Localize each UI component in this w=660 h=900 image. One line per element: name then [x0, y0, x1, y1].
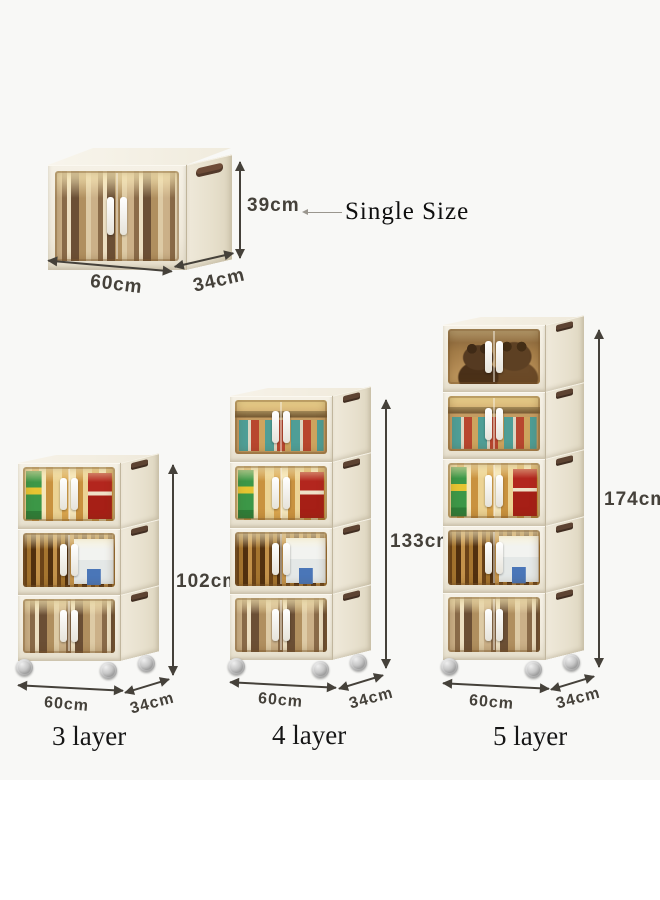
- width-dimension-arrow: [230, 681, 336, 689]
- latch-clip: [556, 321, 573, 332]
- unit-side-panel: [332, 452, 371, 528]
- unit-door-bottles: [448, 530, 540, 585]
- height-dimension-arrow: [239, 162, 241, 258]
- width-dimension-arrow: [18, 684, 123, 691]
- width-dimension-label: 60cm: [468, 692, 514, 714]
- product-dimension-diagram: 39cm 60cm 34cm Single Size 102cm 60cm 34…: [0, 0, 660, 900]
- box-front-panel: [48, 165, 186, 270]
- single-size-title: Single Size: [345, 198, 469, 226]
- door-handle: [484, 341, 504, 373]
- latch-clip: [343, 590, 360, 601]
- door-handle: [484, 542, 504, 574]
- unit-front-panel: [18, 529, 120, 595]
- door-handle: [484, 609, 504, 641]
- latch-clip: [343, 458, 360, 469]
- height-dimension-arrow: [598, 330, 600, 667]
- latch-clip: [556, 589, 573, 600]
- depth-dimension-label: 34cm: [554, 684, 602, 713]
- latch-clip: [556, 388, 573, 399]
- width-dimension-arrow: [443, 682, 549, 690]
- unit-door-plush-toys: [448, 329, 540, 384]
- storage-unit-jars: [230, 396, 332, 462]
- unit-door-books: [448, 597, 540, 652]
- door-handle: [271, 609, 291, 641]
- unit-front-panel: [230, 396, 332, 462]
- unit-door-bottles: [23, 533, 115, 587]
- unit-front-panel: [443, 593, 545, 660]
- unit-side-panel: [545, 382, 584, 459]
- unit-door-snacks: [235, 466, 327, 520]
- unit-side-panel: [120, 519, 159, 595]
- unit-side-panel: [332, 386, 371, 462]
- unit-door-bottles: [235, 532, 327, 586]
- caster-wheel: [228, 658, 245, 675]
- height-dimension-arrow: [385, 400, 387, 668]
- door-handle: [484, 475, 504, 507]
- door-handle: [59, 544, 79, 576]
- unit-door-snacks: [448, 463, 540, 518]
- unit-front-panel: [443, 325, 545, 392]
- unit-side-panel: [120, 585, 159, 661]
- unit-door-books: [23, 599, 115, 653]
- latch-clip: [131, 459, 148, 470]
- door-handle: [271, 477, 291, 509]
- latch-clip: [556, 522, 573, 533]
- unit-side-panel: [545, 583, 584, 660]
- storage-unit-bottles: [18, 529, 120, 595]
- unit-front-panel: [230, 594, 332, 660]
- height-dimension-label: 39cm: [247, 195, 300, 217]
- unit-front-panel: [230, 528, 332, 594]
- unit-side-panel: [332, 518, 371, 594]
- door-handle: [59, 478, 79, 510]
- storage-unit-books: [230, 594, 332, 660]
- height-dimension-arrow: [172, 465, 174, 675]
- door-handle: [271, 411, 291, 443]
- unit-front-panel: [18, 463, 120, 529]
- single-size-section: 39cm 60cm 34cm Single Size: [45, 148, 465, 323]
- storage-unit-jars: [443, 392, 545, 459]
- box-door-books: [55, 171, 179, 261]
- unit-front-panel: [443, 459, 545, 526]
- width-dimension-label: 60cm: [257, 690, 303, 712]
- caster-wheel: [312, 661, 329, 678]
- caster-wheel: [100, 662, 117, 679]
- cabinet-variant-label: 4 layer: [272, 720, 346, 751]
- cabinet-variant-label: 5 layer: [493, 721, 567, 752]
- height-dimension-label: 174cm: [604, 489, 660, 511]
- unit-door-snacks: [23, 467, 115, 521]
- cabinet-5-layer-section: 174cm 60cm 34cm 5 layer: [443, 325, 660, 765]
- cabinet-illustration: [18, 463, 158, 661]
- unit-side-panel: [545, 449, 584, 526]
- unit-front-panel: [443, 392, 545, 459]
- caster-wheel: [138, 655, 155, 672]
- cabinet-illustration: [443, 325, 583, 660]
- door-handle: [59, 610, 79, 642]
- unit-door-jars: [235, 400, 327, 454]
- callout-line: [308, 212, 342, 213]
- unit-door-books: [235, 598, 327, 652]
- storage-unit-bottles: [230, 528, 332, 594]
- latch-clip: [556, 455, 573, 466]
- depth-dimension-label: 34cm: [128, 689, 176, 718]
- unit-door-jars: [448, 396, 540, 451]
- caster-wheel: [563, 654, 580, 671]
- caster-wheel: [16, 659, 33, 676]
- storage-unit-snacks: [443, 459, 545, 526]
- latch-clip: [343, 392, 360, 403]
- latch-clip: [343, 524, 360, 535]
- storage-unit-snacks: [18, 463, 120, 529]
- caster-wheel: [525, 661, 542, 678]
- caster-wheel: [350, 654, 367, 671]
- storage-unit-bottles: [443, 526, 545, 593]
- door-handle: [484, 408, 504, 440]
- storage-unit-snacks: [230, 462, 332, 528]
- cabinet-variant-label: 3 layer: [52, 721, 126, 752]
- cabinet-3-layer-section: 102cm 60cm 34cm 3 layer: [18, 463, 258, 763]
- storage-unit-plush-toys: [443, 325, 545, 392]
- unit-side-panel: [120, 453, 159, 529]
- door-handle: [271, 543, 291, 575]
- latch-clip: [131, 525, 148, 536]
- width-dimension-label: 60cm: [43, 694, 89, 716]
- caster-wheel: [441, 658, 458, 675]
- carry-handle: [196, 162, 223, 177]
- depth-dimension-label: 34cm: [347, 684, 395, 713]
- cabinet-illustration: [230, 396, 370, 660]
- unit-side-panel: [545, 516, 584, 593]
- unit-front-panel: [443, 526, 545, 593]
- storage-unit-books: [443, 593, 545, 660]
- storage-unit-books: [18, 595, 120, 661]
- cabinet-4-layer-section: 133cm 60cm 34cm 4 layer: [230, 396, 470, 766]
- unit-front-panel: [230, 462, 332, 528]
- door-handle: [106, 197, 128, 235]
- unit-side-panel: [332, 584, 371, 660]
- unit-front-panel: [18, 595, 120, 661]
- unit-side-panel: [545, 315, 584, 392]
- latch-clip: [131, 591, 148, 602]
